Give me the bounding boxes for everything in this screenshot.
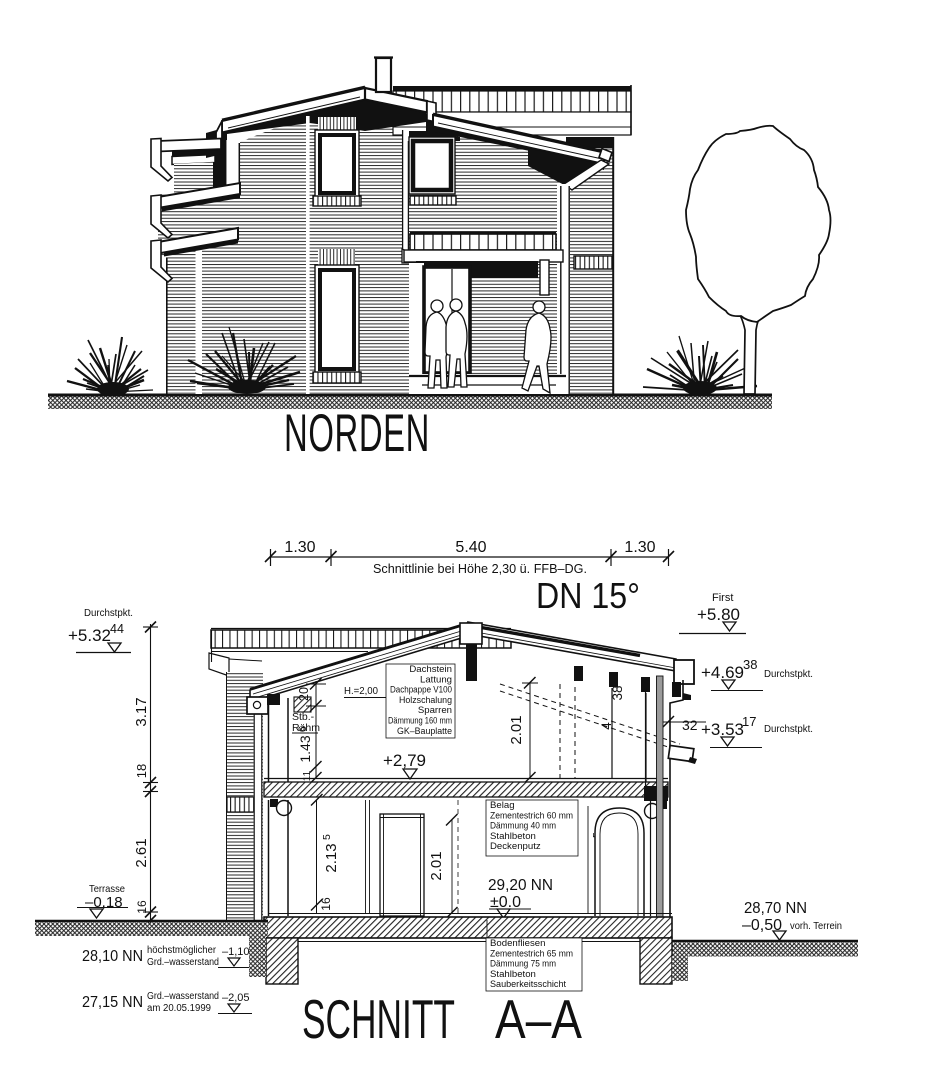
svg-text:am 20.05.1999: am 20.05.1999: [147, 1003, 211, 1014]
svg-text:38: 38: [743, 657, 757, 672]
svg-text:16: 16: [319, 897, 333, 911]
svg-text:44: 44: [110, 622, 124, 636]
svg-text:18: 18: [134, 764, 149, 778]
svg-text:GK–Bauplatte: GK–Bauplatte: [397, 726, 452, 737]
svg-text:Grd.–wasserstand: Grd.–wasserstand: [147, 957, 219, 968]
svg-text:1.43: 1.43: [297, 735, 313, 762]
svg-text:5.40: 5.40: [455, 539, 486, 556]
svg-text:NORDEN: NORDEN: [284, 404, 430, 463]
svg-text:+5.32: +5.32: [68, 626, 111, 645]
svg-text:29,20 NN: 29,20 NN: [488, 877, 553, 894]
svg-text:2.13: 2.13: [323, 843, 340, 872]
svg-text:1.30: 1.30: [284, 539, 315, 556]
svg-text:Deckenputz: Deckenputz: [490, 841, 541, 852]
svg-text:DN 15°: DN 15°: [536, 575, 640, 616]
svg-text:38: 38: [610, 685, 625, 700]
svg-text:16: 16: [135, 900, 149, 914]
svg-text:–1,10: –1,10: [222, 946, 250, 958]
svg-text:A–A: A–A: [495, 988, 582, 1050]
svg-text:+2,79: +2,79: [383, 751, 426, 770]
svg-text:+5.80: +5.80: [697, 605, 740, 624]
svg-text:27,15 NN: 27,15 NN: [82, 994, 143, 1011]
svg-text:–2,05: –2,05: [222, 992, 250, 1004]
svg-text:3.17: 3.17: [133, 697, 150, 726]
svg-text:höchstmöglicher: höchstmöglicher: [147, 945, 217, 956]
svg-text:6: 6: [297, 726, 309, 732]
svg-text:20: 20: [297, 687, 311, 701]
svg-text:11: 11: [302, 770, 313, 781]
svg-text:Durchstpkt.: Durchstpkt.: [764, 723, 813, 735]
svg-text:Grd.–wasserstand: Grd.–wasserstand: [147, 991, 219, 1002]
svg-text:Schnittlinie bei Höhe 2,30 ü.: Schnittlinie bei Höhe 2,30 ü. FFB–DG.: [373, 562, 587, 576]
svg-text:28,10 NN: 28,10 NN: [82, 948, 143, 965]
svg-text:+3.53: +3.53: [701, 720, 744, 739]
svg-text:+4.69: +4.69: [701, 663, 744, 682]
svg-text:2.01: 2.01: [428, 851, 445, 880]
svg-text:vorh. Terrein: vorh. Terrein: [790, 920, 842, 932]
svg-text:4: 4: [599, 722, 614, 730]
svg-text:Durchstpkt.: Durchstpkt.: [84, 607, 133, 619]
svg-text:H.=2,00: H.=2,00: [344, 685, 378, 697]
svg-text:5: 5: [321, 834, 333, 840]
svg-text:32: 32: [682, 717, 698, 733]
svg-text:First: First: [712, 592, 733, 604]
svg-text:2.61: 2.61: [133, 838, 150, 867]
svg-text:SCHNITT: SCHNITT: [302, 988, 455, 1050]
svg-text:28,70 NN: 28,70 NN: [744, 900, 807, 917]
svg-text:17: 17: [742, 714, 756, 729]
svg-text:Durchstpkt.: Durchstpkt.: [764, 668, 813, 680]
svg-text:2.01: 2.01: [508, 715, 525, 744]
svg-text:1.30: 1.30: [624, 539, 655, 556]
